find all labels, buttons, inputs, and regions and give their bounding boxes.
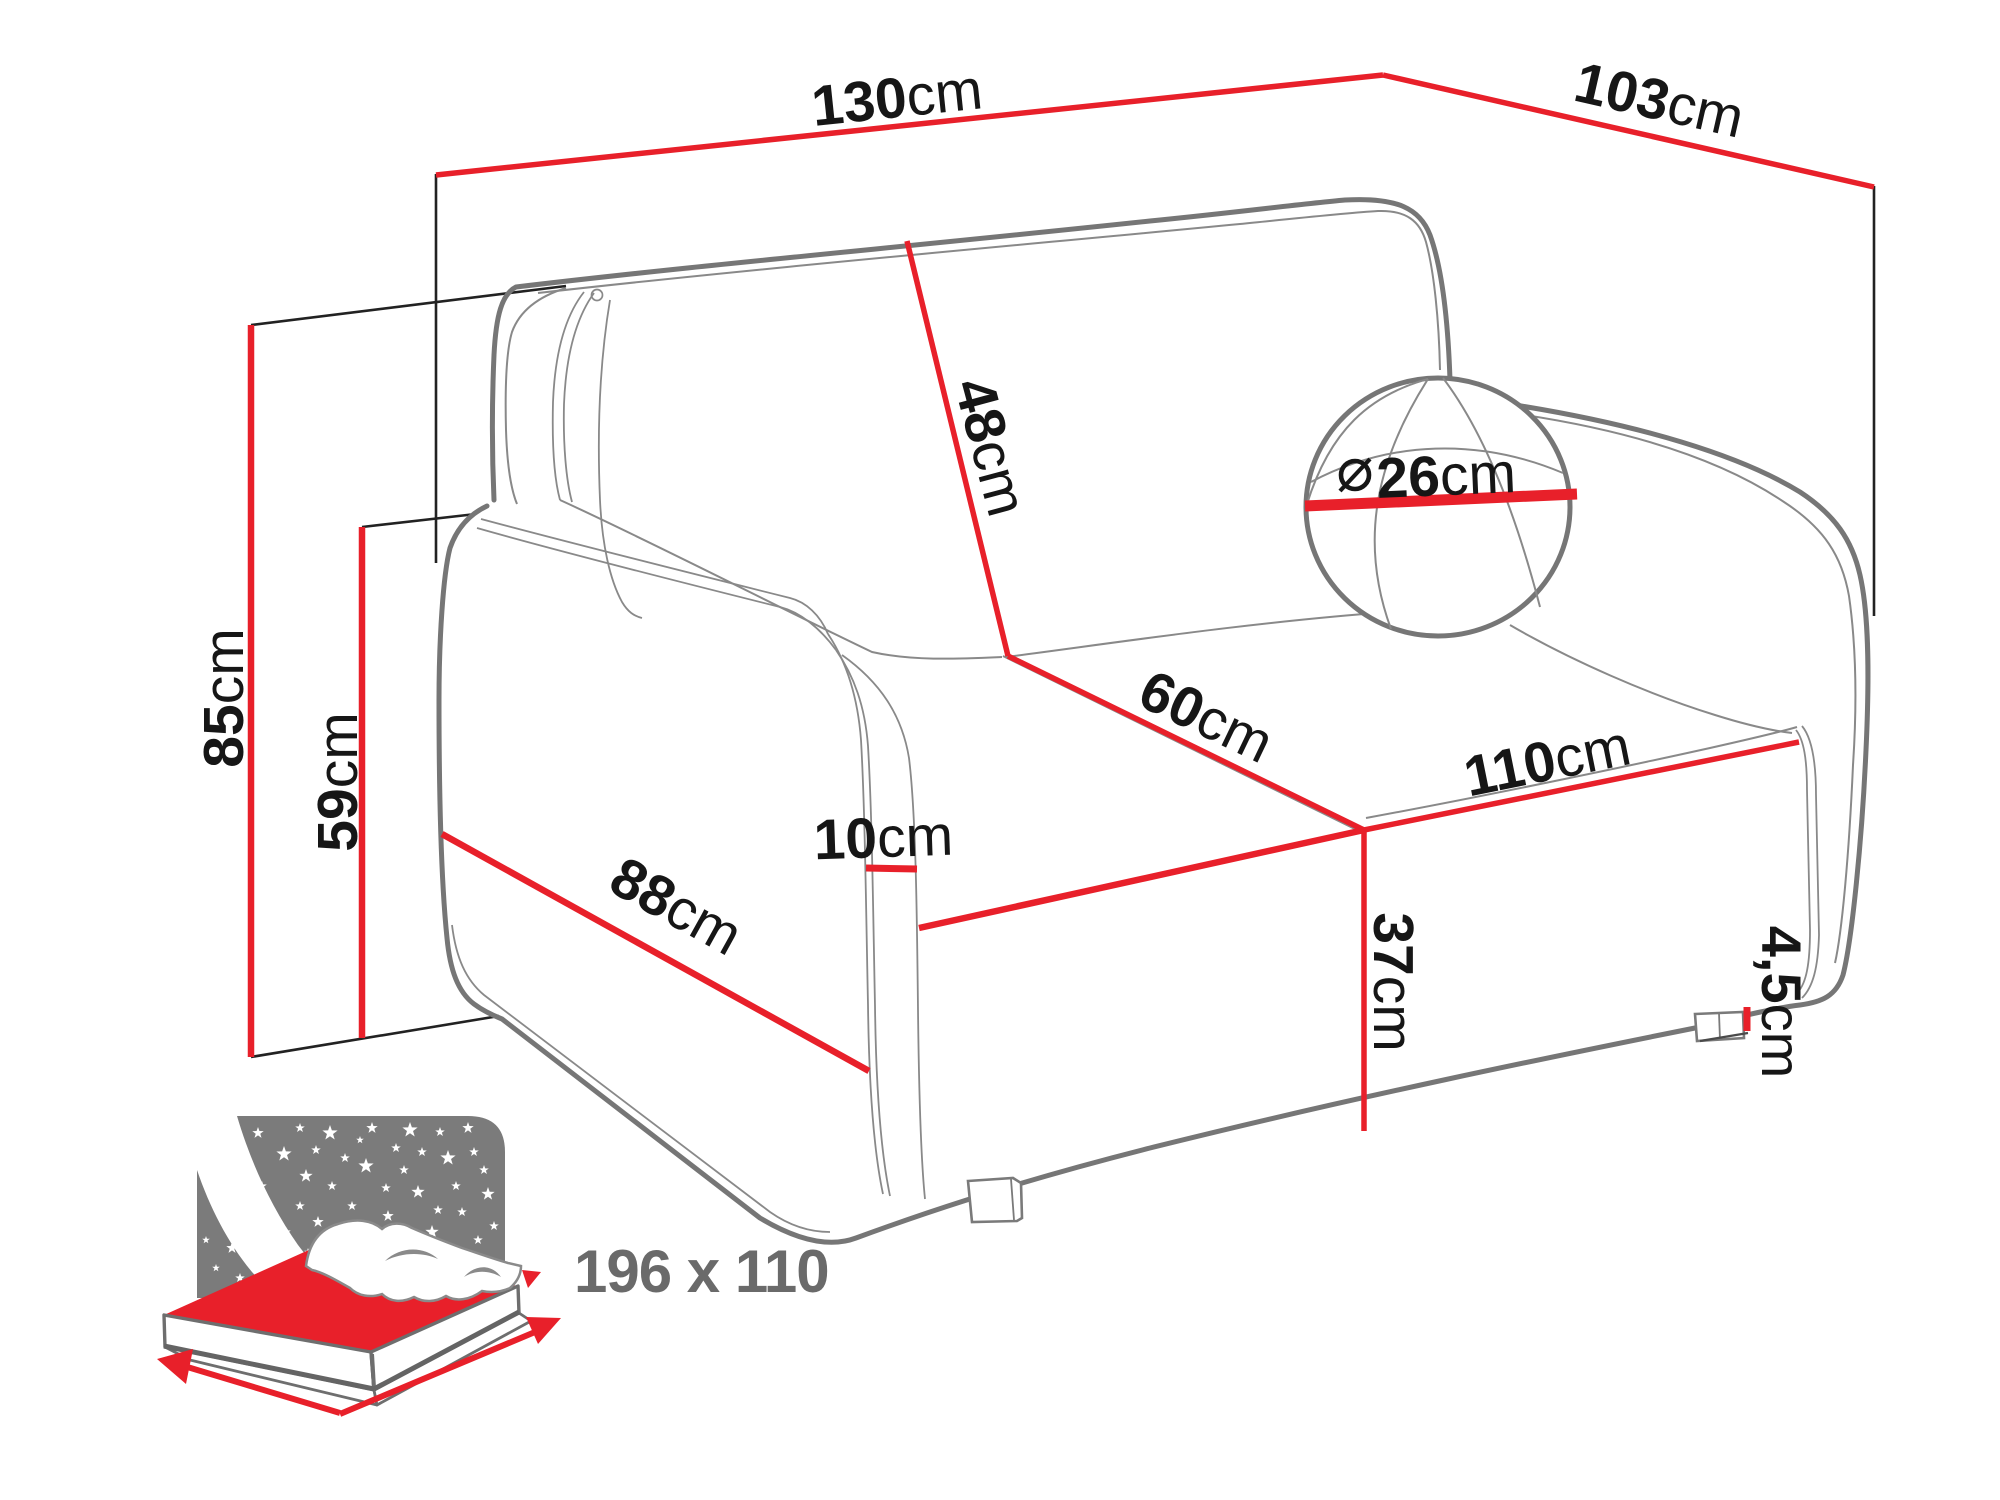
svg-text:196 x 110: 196 x 110 (574, 1238, 829, 1305)
svg-text:10cm: 10cm (813, 804, 955, 873)
svg-text:85cm: 85cm (192, 628, 256, 767)
svg-text:130cm: 130cm (809, 57, 986, 139)
svg-text:26cm: 26cm (1375, 441, 1517, 511)
svg-text:37cm: 37cm (1361, 912, 1425, 1051)
svg-text:88cm: 88cm (600, 845, 753, 969)
svg-text:59cm: 59cm (306, 712, 370, 851)
svg-text:4,5cm: 4,5cm (1750, 926, 1813, 1079)
svg-text:60cm: 60cm (1130, 658, 1283, 776)
